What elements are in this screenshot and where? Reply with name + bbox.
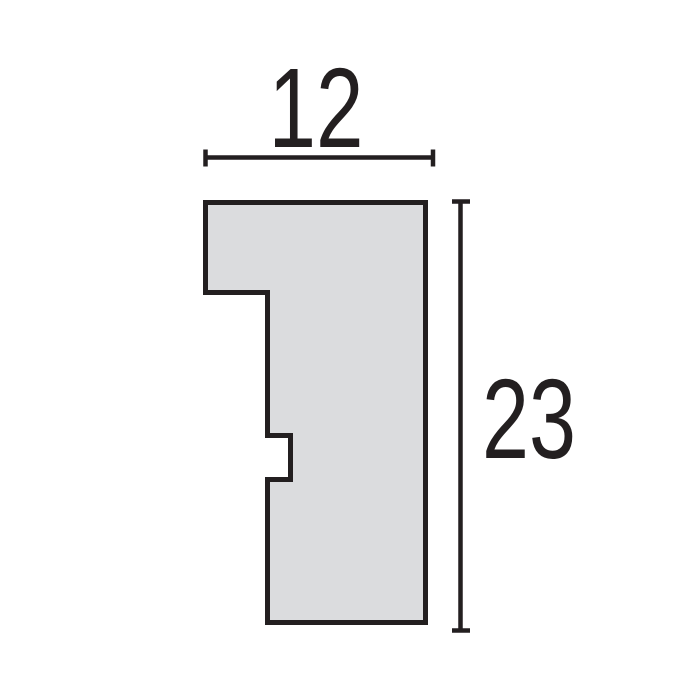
width-dimension-label: 12 xyxy=(269,45,364,171)
moulding-profile-shape xyxy=(206,203,426,623)
profile-diagram: 12 23 xyxy=(0,0,700,700)
diagram-canvas: 12 23 xyxy=(0,0,700,700)
height-dimension xyxy=(452,202,470,631)
height-dimension-label: 23 xyxy=(482,356,576,482)
